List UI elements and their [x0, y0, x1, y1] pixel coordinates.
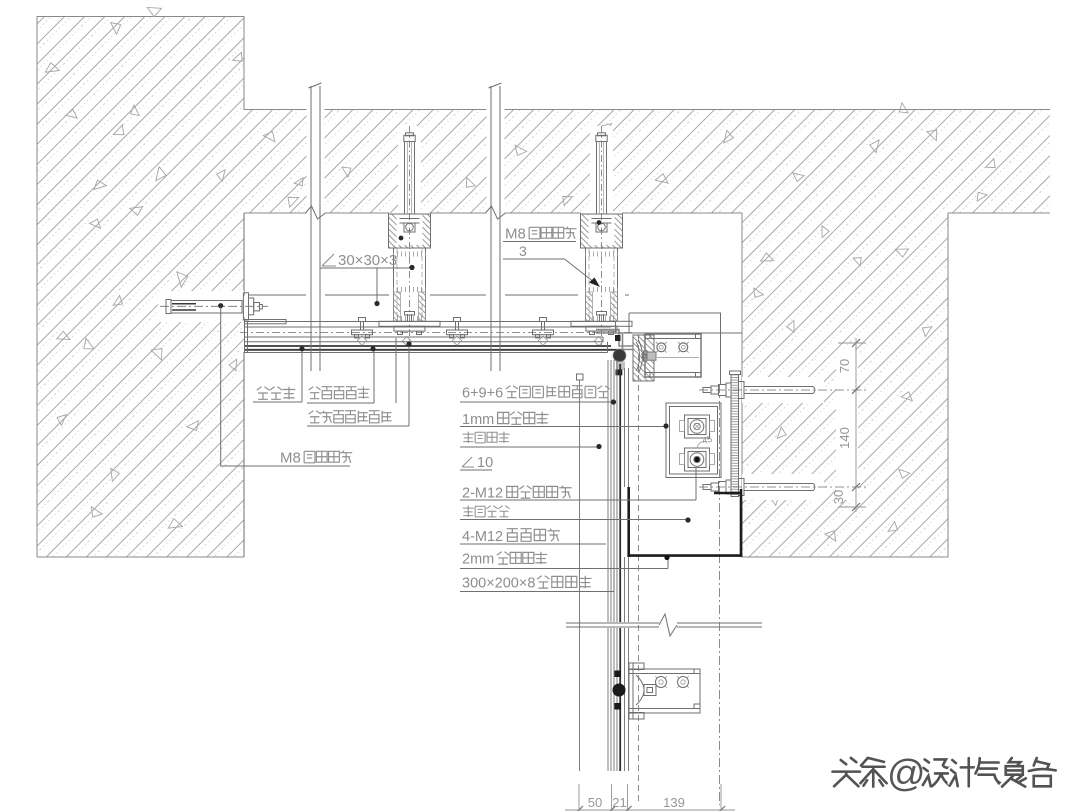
svg-text:300×200×8: 300×200×8 — [462, 576, 535, 592]
svg-text:139: 139 — [663, 795, 685, 810]
svg-text:6+9+6: 6+9+6 — [462, 385, 503, 401]
svg-text:30×30×3: 30×30×3 — [338, 252, 397, 269]
svg-text:50: 50 — [588, 795, 602, 810]
svg-text:70: 70 — [837, 359, 852, 373]
svg-text:140: 140 — [837, 427, 852, 449]
svg-text:3: 3 — [519, 243, 527, 259]
svg-text:2-M12: 2-M12 — [462, 486, 503, 502]
svg-text:2mm: 2mm — [462, 552, 494, 568]
svg-text:4-M12: 4-M12 — [462, 529, 503, 545]
svg-text:21: 21 — [612, 795, 626, 810]
svg-text:1mm: 1mm — [462, 412, 494, 428]
svg-text:@: @ — [887, 753, 926, 795]
svg-text:30: 30 — [831, 490, 846, 504]
svg-text:10: 10 — [477, 455, 493, 471]
svg-text:M8: M8 — [280, 449, 301, 466]
svg-text:M8: M8 — [505, 225, 526, 242]
